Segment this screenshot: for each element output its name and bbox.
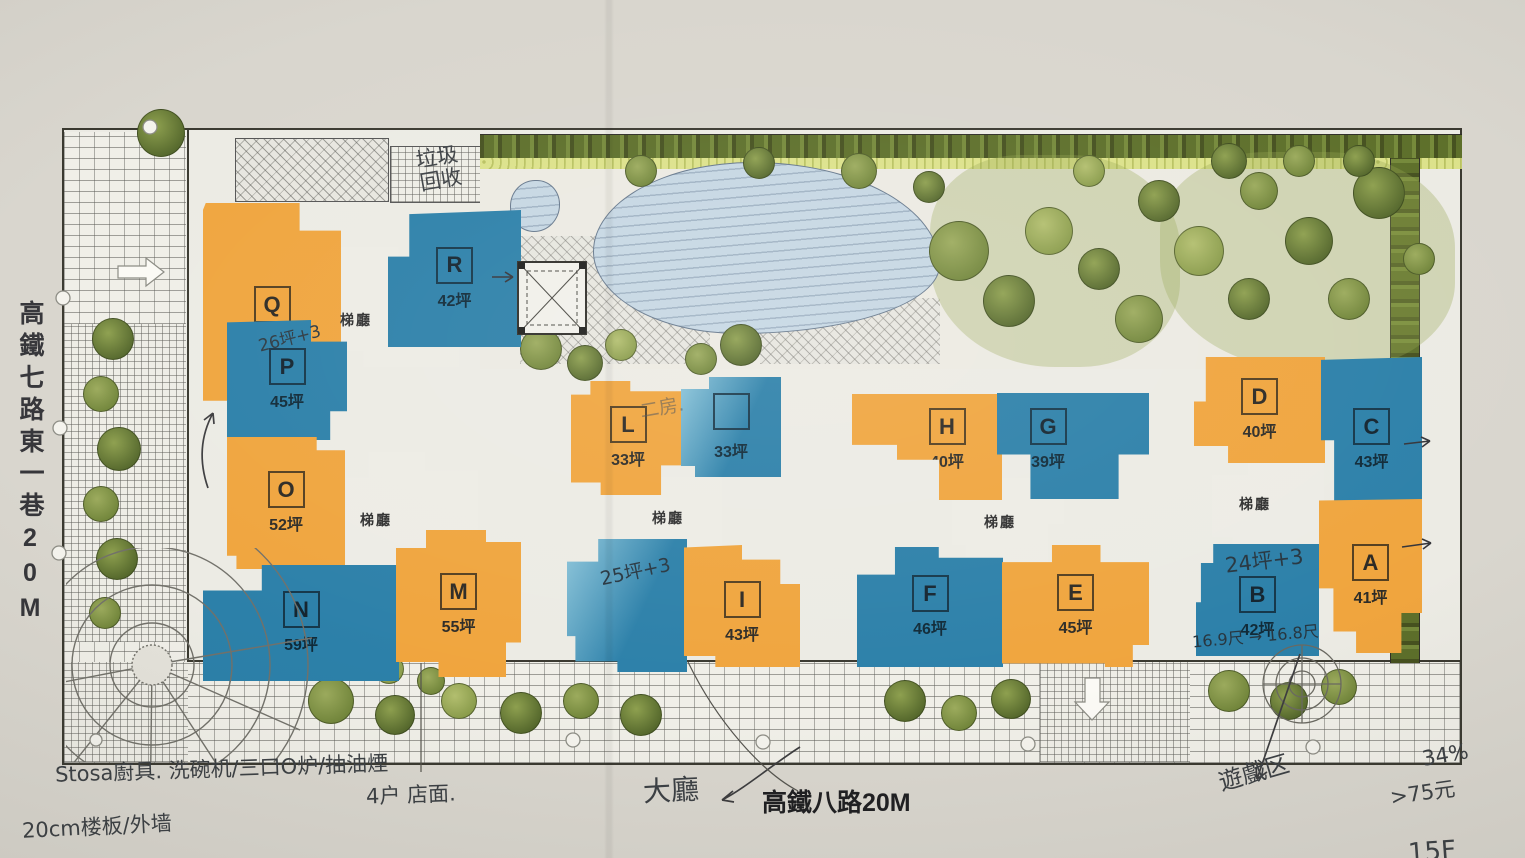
bottom-road-label: 高鐵八路20M bbox=[762, 783, 911, 819]
left-road-label: 高鐵七路東一巷20M bbox=[12, 300, 48, 629]
tree-icon bbox=[83, 486, 119, 522]
tree-icon bbox=[1078, 248, 1120, 290]
tree-icon bbox=[1343, 145, 1375, 177]
bottom-road-corner bbox=[64, 662, 188, 762]
tree-icon bbox=[913, 171, 945, 203]
tree-icon bbox=[625, 155, 657, 187]
unit-C: C43坪 bbox=[1321, 357, 1422, 503]
stair-hall-label-2: 梯廳 bbox=[360, 510, 392, 530]
unit-M-letter-box: M bbox=[440, 573, 477, 610]
unit-N-letter-box: N bbox=[283, 591, 320, 628]
tree-icon bbox=[1240, 172, 1278, 210]
unit-F-letter-box: F bbox=[912, 575, 949, 612]
unit-H-letter-box: H bbox=[929, 408, 966, 445]
unit-K-letter-box bbox=[713, 393, 750, 430]
unit-K-area: 33坪 bbox=[713, 438, 750, 462]
tree-icon bbox=[375, 695, 415, 735]
unit-L-area: 33坪 bbox=[610, 446, 647, 470]
tree-icon bbox=[563, 683, 599, 719]
note-floor: 15F bbox=[1407, 836, 1457, 858]
unit-C-letter-box: C bbox=[1353, 408, 1390, 445]
unit-O: O52坪 bbox=[227, 437, 345, 569]
tree-icon bbox=[685, 343, 717, 375]
tree-icon bbox=[1208, 670, 1250, 712]
tree-icon bbox=[500, 692, 542, 734]
stair-hall-label-1: 梯廳 bbox=[340, 310, 372, 330]
tree-icon bbox=[92, 318, 134, 360]
tree-icon bbox=[884, 680, 926, 722]
tree-icon bbox=[1321, 669, 1357, 705]
tree-icon bbox=[620, 694, 662, 736]
tree-icon bbox=[1328, 278, 1370, 320]
note-slab: 20cm楼板/外墙 bbox=[21, 812, 172, 843]
unit-N-area: 59坪 bbox=[283, 631, 320, 655]
unit-E-letter-box: E bbox=[1057, 574, 1094, 611]
tree-icon bbox=[137, 109, 185, 157]
tree-icon bbox=[1228, 278, 1270, 320]
left-road-paving bbox=[64, 132, 186, 324]
tree-icon bbox=[1073, 155, 1105, 187]
tree-icon bbox=[841, 153, 877, 189]
tree-icon bbox=[1270, 682, 1308, 720]
tree-icon bbox=[89, 597, 121, 629]
tree-icon bbox=[720, 324, 762, 366]
unit-I-area: 43坪 bbox=[724, 621, 761, 645]
unit-D-area: 40坪 bbox=[1241, 418, 1278, 442]
unit-R-area: 42坪 bbox=[436, 287, 473, 311]
note-price: >75元 bbox=[1389, 778, 1457, 810]
unit-B-letter-box: B bbox=[1239, 576, 1276, 613]
unit-Q-letter-box: Q bbox=[254, 286, 291, 323]
tree-icon bbox=[929, 221, 989, 281]
unit-G-area: 39坪 bbox=[1030, 448, 1067, 472]
unit-R-letter-box: R bbox=[436, 247, 473, 284]
stair-hall-label-4: 梯廳 bbox=[984, 512, 1016, 532]
tree-icon bbox=[605, 329, 637, 361]
bottom-road-crosshatch bbox=[1040, 662, 1190, 762]
unit-E: E45坪 bbox=[1002, 545, 1149, 667]
unit-A-area: 41坪 bbox=[1352, 584, 1389, 608]
tree-icon bbox=[991, 679, 1031, 719]
tree-icon bbox=[441, 683, 477, 719]
tree-icon bbox=[1403, 243, 1435, 275]
note-percent: 34% bbox=[1420, 740, 1470, 771]
unit-K: 33坪 bbox=[681, 377, 781, 477]
unit-I-letter-box: I bbox=[724, 581, 761, 618]
tree-icon bbox=[1211, 143, 1247, 179]
note-lobby: 大廳 bbox=[642, 775, 700, 809]
unit-F-area: 46坪 bbox=[912, 615, 949, 639]
tree-icon bbox=[96, 538, 138, 580]
tree-icon bbox=[1115, 295, 1163, 343]
unit-M-area: 55坪 bbox=[440, 613, 477, 637]
unit-P-area: 45坪 bbox=[269, 388, 306, 412]
tree-icon bbox=[1025, 207, 1073, 255]
left-road-inner-boundary bbox=[187, 130, 189, 662]
site-plan-photo: Q43坪 R42坪 P45坪 O52坪 N59坪 M55坪 L33坪 33坪 I… bbox=[0, 0, 1525, 858]
unit-D-letter-box: D bbox=[1241, 378, 1278, 415]
note-recycle: 垃圾 回收 bbox=[414, 143, 463, 196]
unit-O-area: 52坪 bbox=[268, 511, 305, 535]
tree-icon bbox=[308, 678, 354, 724]
left-road-crosshatch bbox=[64, 324, 186, 642]
unit-E-area: 45坪 bbox=[1057, 614, 1094, 638]
note-storefront: 4户 店面. bbox=[366, 782, 456, 808]
tree-icon bbox=[941, 695, 977, 731]
unit-A-letter-box: A bbox=[1352, 544, 1389, 581]
tree-icon bbox=[983, 275, 1035, 327]
unit-P-letter-box: P bbox=[269, 348, 306, 385]
tree-icon bbox=[1174, 226, 1224, 276]
tree-icon bbox=[1285, 217, 1333, 265]
unit-C-area: 43坪 bbox=[1353, 448, 1390, 472]
hatch-strip-1 bbox=[235, 138, 389, 202]
stair-hall-label-3: 梯廳 bbox=[652, 508, 684, 528]
tree-icon bbox=[567, 345, 603, 381]
unit-G-letter-box: G bbox=[1030, 408, 1067, 445]
tree-icon bbox=[1138, 180, 1180, 222]
tree-icon bbox=[83, 376, 119, 412]
unit-M: M55坪 bbox=[396, 530, 521, 680]
tree-icon bbox=[1283, 145, 1315, 177]
tree-icon bbox=[97, 427, 141, 471]
unit-O-letter-box: O bbox=[268, 471, 305, 508]
tree-icon bbox=[743, 147, 775, 179]
tree-icon bbox=[520, 328, 562, 370]
stair-hall-label-5: 梯廳 bbox=[1239, 494, 1271, 514]
